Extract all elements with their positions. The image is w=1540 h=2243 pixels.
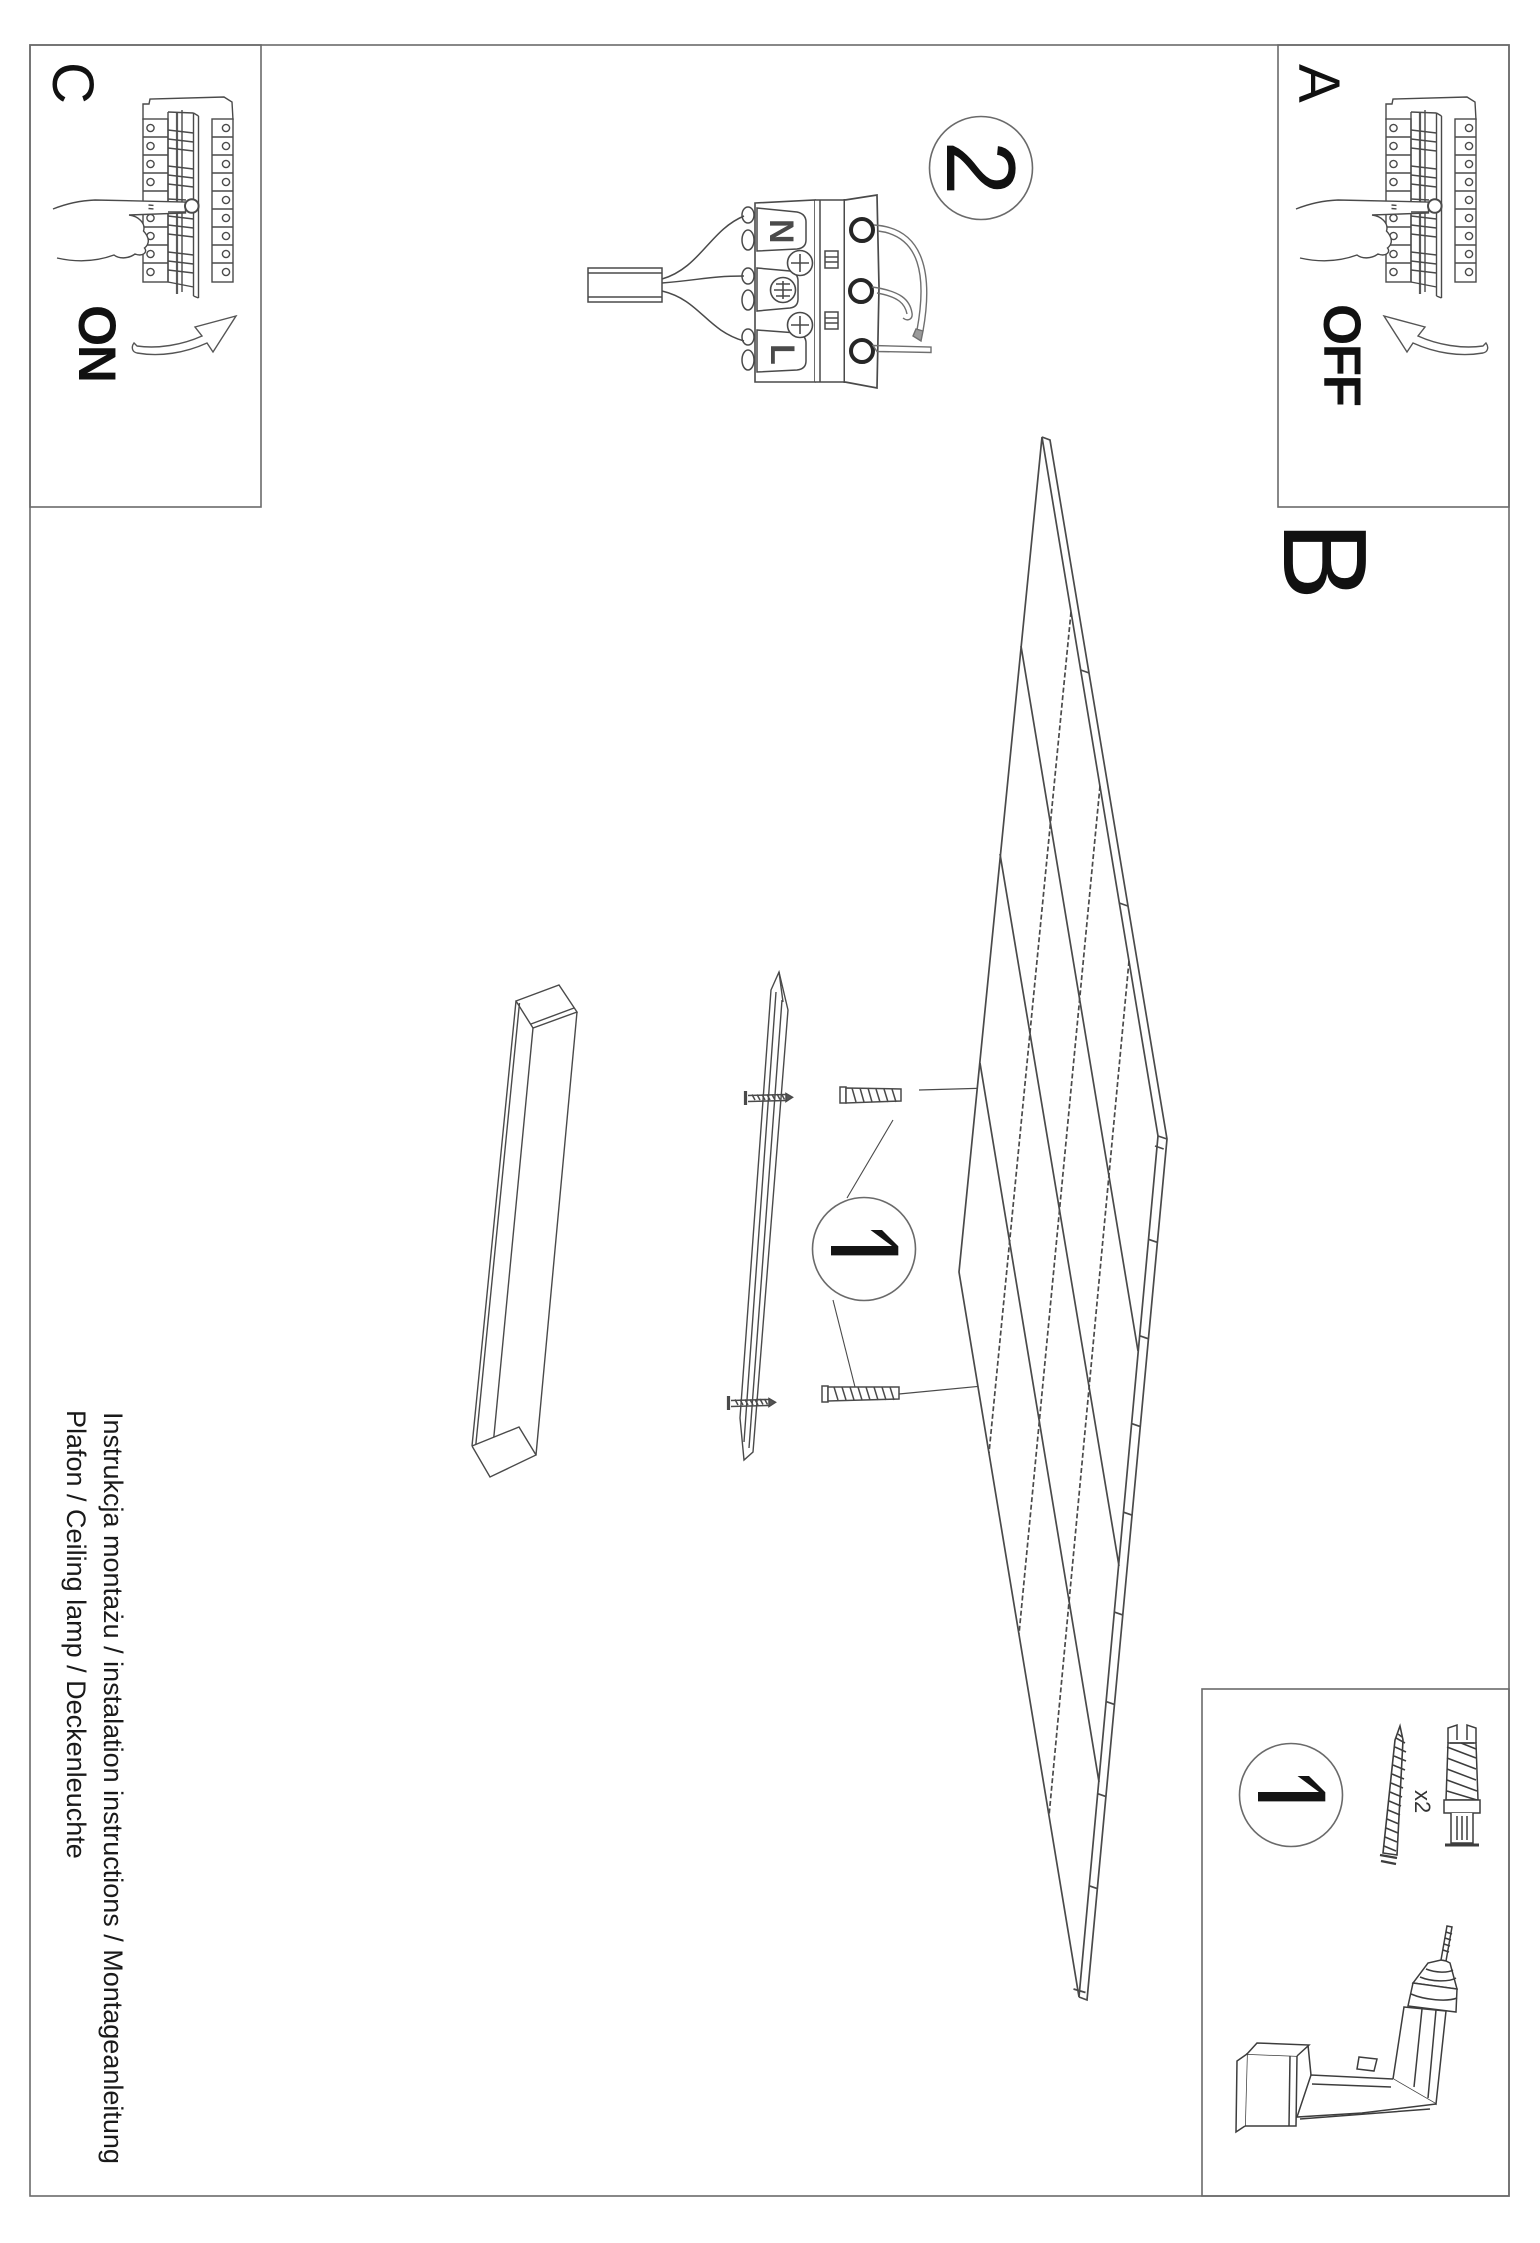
svg-text:Plafon / Ceiling lamp / Decken: Plafon / Ceiling lamp / Deckenleuchte xyxy=(61,1410,91,1859)
svg-text:ON: ON xyxy=(67,305,126,382)
svg-text:A: A xyxy=(1286,64,1351,103)
svg-text:2: 2 xyxy=(926,141,1036,196)
svg-text:B: B xyxy=(1258,521,1391,600)
svg-text:x2: x2 xyxy=(1410,1790,1435,1813)
svg-text:L: L xyxy=(763,344,801,365)
svg-text:Instrukcja montażu / instalati: Instrukcja montażu / instalation instruc… xyxy=(98,1412,128,2164)
svg-text:C: C xyxy=(40,62,105,104)
svg-text:N: N xyxy=(762,219,800,244)
svg-text:OFF: OFF xyxy=(1312,304,1371,406)
